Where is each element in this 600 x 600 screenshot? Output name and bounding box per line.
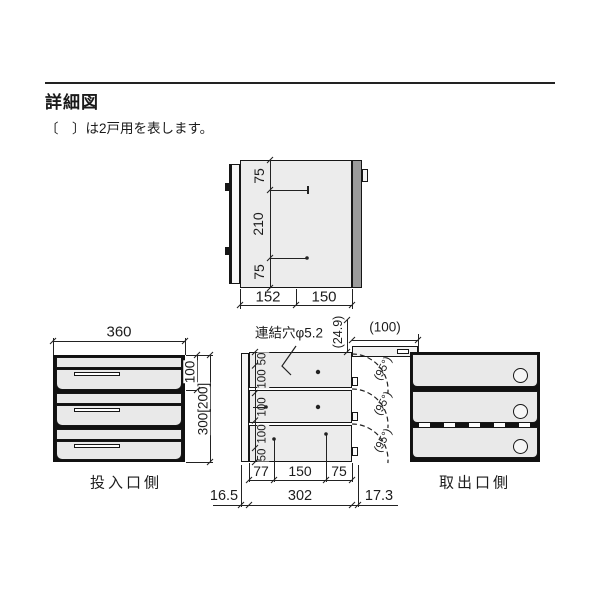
door-swing-arc <box>352 389 388 428</box>
hole-leader-line <box>282 346 296 375</box>
door-swing-arc <box>352 354 388 393</box>
door-swing-arc <box>352 424 388 463</box>
hole-dot <box>264 405 268 409</box>
hole-dot <box>324 432 328 436</box>
hole-dot <box>316 405 320 409</box>
hole-dot <box>316 370 320 374</box>
drawing-overlay <box>0 0 600 600</box>
hole-dot <box>272 437 276 441</box>
plan-marker-dot <box>305 256 309 260</box>
